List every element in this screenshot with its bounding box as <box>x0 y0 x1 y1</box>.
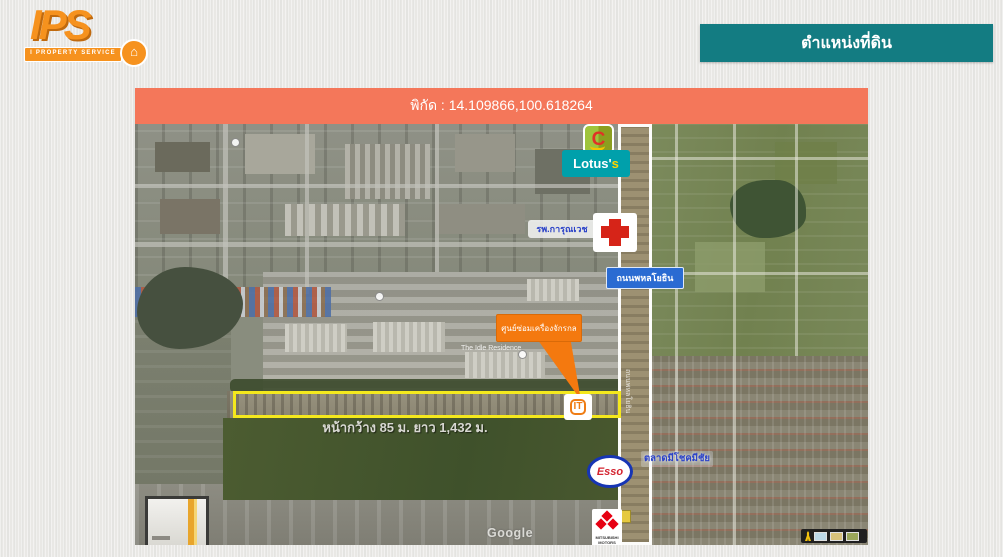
lotus-text: Lotus' <box>573 156 611 171</box>
map-building-block <box>155 142 210 172</box>
place-dot <box>375 292 384 301</box>
ips-logo-subtitle: I PROPERTY SERVICE <box>24 47 122 62</box>
map-building-block <box>435 204 525 234</box>
google-watermark: Google <box>487 526 533 540</box>
map-farm-patch <box>775 142 837 184</box>
mitsubishi-text: MITSUBISHI MOTORS <box>592 535 622 545</box>
road-name-text: ถนนพหลโยธิน <box>617 271 674 285</box>
land-parcel-outline <box>233 391 621 418</box>
place-label: The Idle Residence <box>461 345 521 352</box>
google-maps-toolbar <box>801 529 867 543</box>
map-warehouse-roof <box>465 352 545 378</box>
map-road <box>135 184 618 188</box>
mitsubishi-logo: MITSUBISHI MOTORS <box>592 509 622 545</box>
map-farm-patch <box>695 242 765 292</box>
map-warehouse-roof <box>373 322 445 352</box>
inset-stripe <box>194 499 197 545</box>
mitsubishi-diamond-icon <box>607 518 618 529</box>
esso-logo: Esso <box>587 455 633 488</box>
slide: IPS I PROPERTY SERVICE ⌂ ตำแหน่งที่ดิน พ… <box>0 0 1003 557</box>
inset-caption-smudge <box>152 536 170 540</box>
road-name-sign: ถนนพหลโยธิน <box>606 267 684 289</box>
hospital-label: รพ.การุณเวช <box>528 220 596 238</box>
bigc-logo-inner: C <box>585 126 612 153</box>
map-road <box>305 124 309 294</box>
map-building-block <box>285 204 405 236</box>
map-building-block <box>160 199 220 234</box>
market-label: ตลาดมีโชคมีชัย <box>641 451 713 467</box>
map-warehouse-roof <box>527 279 579 301</box>
parcel-marker-glyph: IT <box>570 399 587 415</box>
road-name-vertical: ถนนพหลโยธิน <box>622 369 633 509</box>
pegman-icon <box>805 531 811 541</box>
place-dot <box>231 138 240 147</box>
page-title-label: ตำแหน่งที่ดิน <box>801 31 892 56</box>
coordinates-text: พิกัด : 14.109866,100.618264 <box>410 95 593 117</box>
map-farm-road <box>652 272 868 275</box>
ips-logo-text: IPS <box>30 3 89 47</box>
map-farm-road <box>652 157 868 160</box>
callout-text: ศูนย์ซ่อมเครื่องจักรกล <box>501 322 576 335</box>
map-thumbnail <box>814 532 827 541</box>
esso-text: Esso <box>597 466 623 478</box>
parcel-dimensions-label: หน้ากว้าง 85 ม. ยาว 1,432 ม. <box>255 417 555 438</box>
map-farm-road <box>733 124 736 545</box>
lotus-logo: Lotus's <box>562 150 630 177</box>
map-warehouse-roof <box>285 324 347 352</box>
content-card: พิกัด : 14.109866,100.618264 <box>135 88 868 545</box>
map-thumbnail <box>846 532 859 541</box>
road-marker <box>621 510 631 523</box>
photo-inset-thumbnail <box>145 496 209 545</box>
hospital-cross-icon <box>593 213 637 252</box>
ips-house-icon: ⌂ <box>120 39 148 67</box>
satellite-map: ถนนพหลโยธิน C Lotus's รพ.การุณเวช <box>135 124 868 545</box>
map-building-block <box>455 134 515 172</box>
map-thumbnail <box>830 532 843 541</box>
callout-box: ศูนย์ซ่อมเครื่องจักรกล <box>496 314 582 342</box>
map-road <box>435 124 439 272</box>
map-building-block <box>345 144 430 199</box>
ips-logo: IPS I PROPERTY SERVICE ⌂ <box>22 5 147 67</box>
coordinates-bar: พิกัด : 14.109866,100.618264 <box>135 88 868 124</box>
cross-horizontal <box>601 226 629 238</box>
page-title: ตำแหน่งที่ดิน <box>700 24 993 62</box>
parcel-marker-icon: IT <box>564 394 592 420</box>
map-road <box>223 124 228 294</box>
map-farm-road <box>675 124 678 545</box>
lotus-suffix: s <box>612 156 619 171</box>
map-road <box>135 242 618 247</box>
